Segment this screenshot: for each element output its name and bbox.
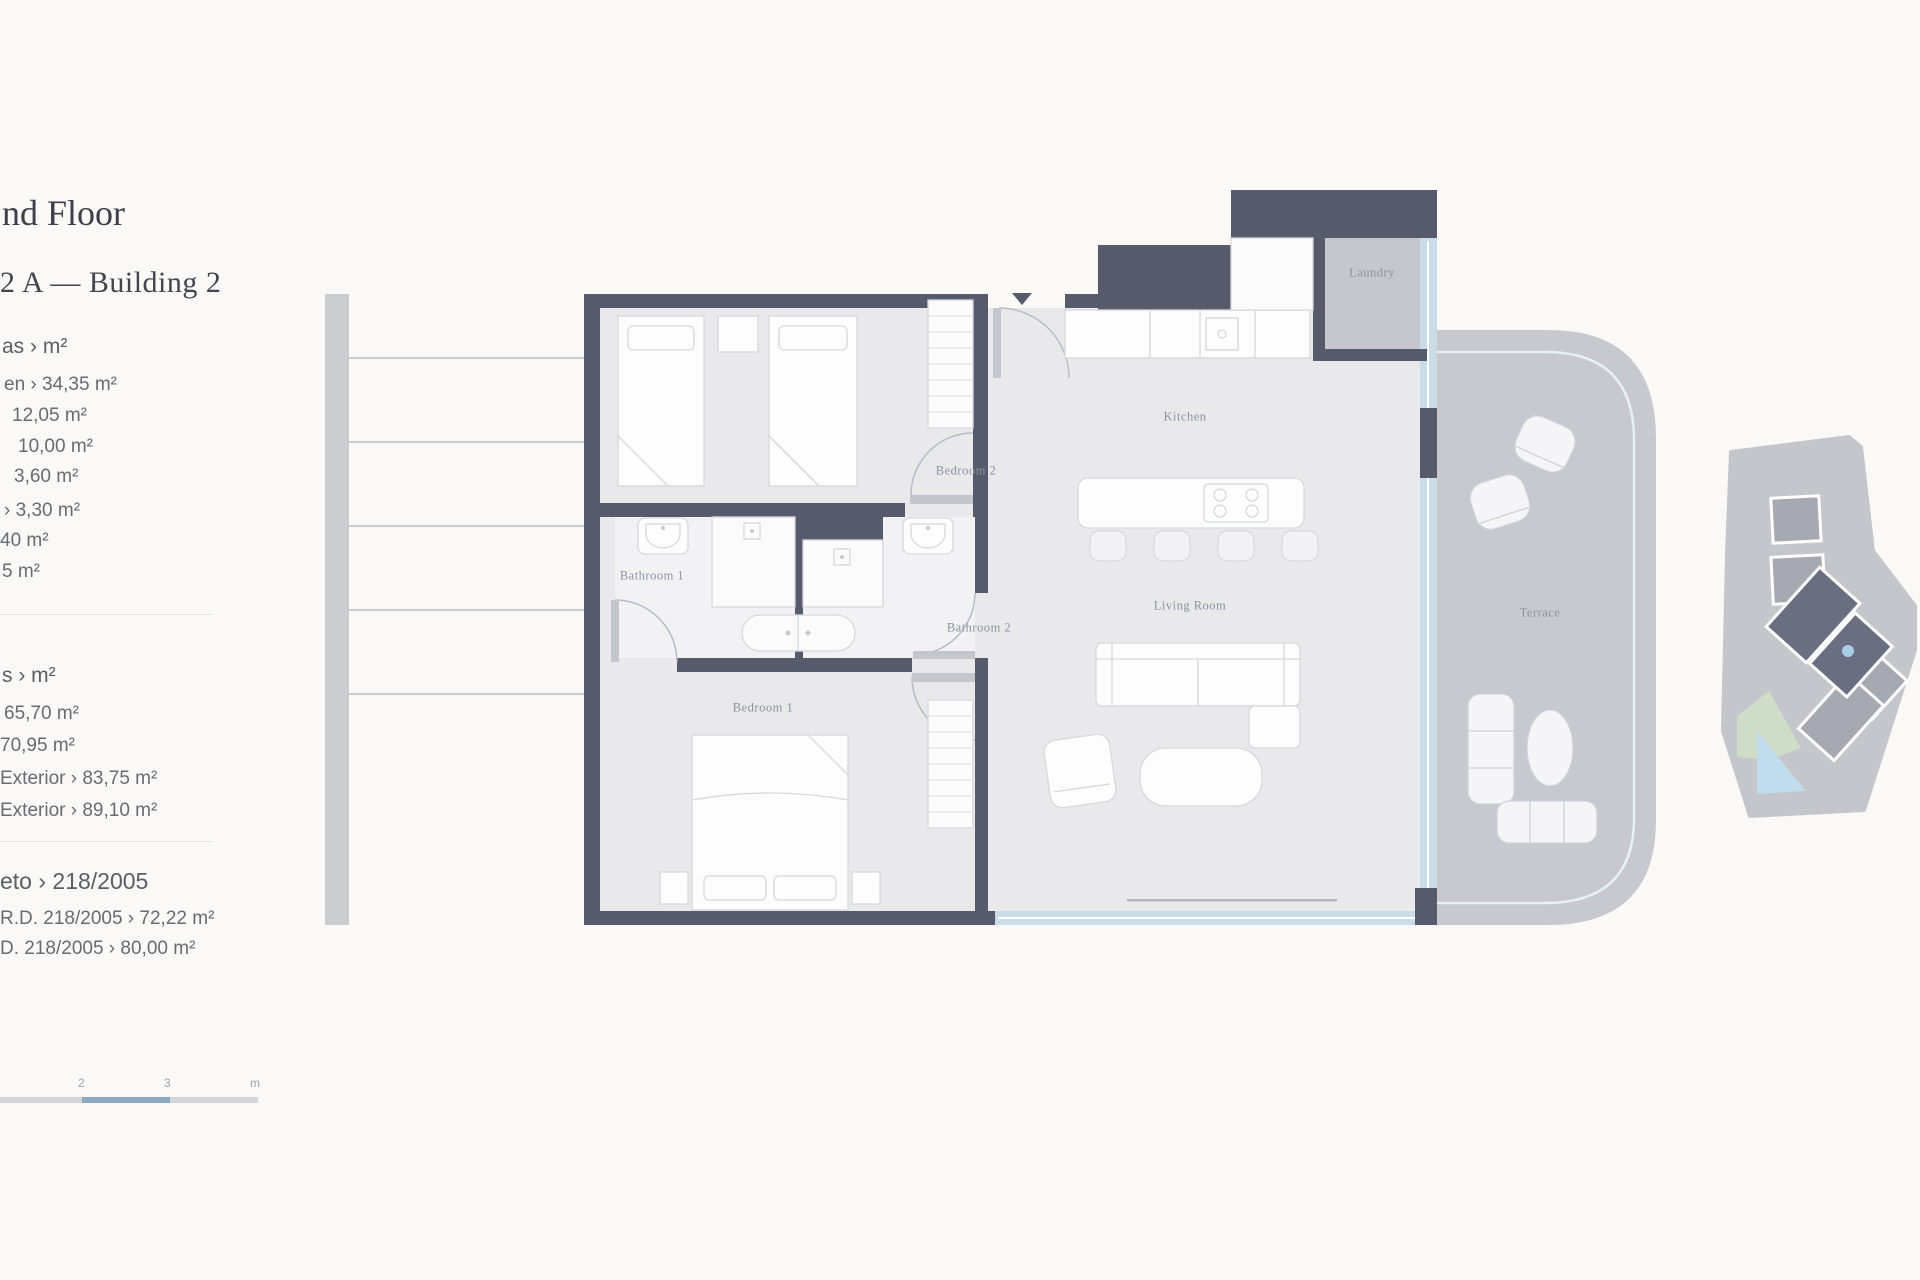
- room-label-bathroom1: Bathroom 1: [620, 569, 684, 584]
- area-item: R.D. 218/2005 › 72,22 m²: [0, 908, 214, 930]
- divider: [0, 614, 212, 615]
- site-locator-map: [1723, 437, 1915, 816]
- decree-heading: eto › 218/2005: [0, 868, 148, 895]
- room-label-kitchen: Kitchen: [1163, 410, 1206, 425]
- page-subtitle: 2 A — Building 2: [0, 266, 221, 300]
- floor-plan-page: Kitchen Living Room Bedroom 1 Bedroom 2 …: [0, 0, 1920, 1280]
- scale-label-2: 2: [78, 1076, 85, 1090]
- area-item: Exterior › 89,10 m²: [0, 800, 157, 822]
- scale-label-3: 3: [164, 1076, 171, 1090]
- page-title: nd Floor: [2, 192, 125, 234]
- bedroom1-wardrobe: [928, 700, 973, 828]
- area-item: 40 m²: [0, 530, 49, 552]
- area-item: 3,60 m²: [14, 466, 78, 488]
- floor-plan-svg: [0, 0, 1920, 1280]
- unit-highlight-dot: [1842, 645, 1854, 657]
- area-item: Exterior › 83,75 m²: [0, 768, 157, 790]
- laundry-floor: [1325, 238, 1420, 349]
- built-areas-heading: s › m²: [2, 664, 56, 688]
- living-armchair: [1043, 733, 1118, 810]
- divider: [0, 841, 212, 842]
- area-item: 65,70 m²: [4, 703, 79, 725]
- area-item: en › 34,35 m²: [4, 374, 117, 396]
- room-label-terrace: Terrace: [1520, 606, 1561, 621]
- entrance-marker-icon: [1012, 293, 1032, 305]
- room-label-bedroom2: Bedroom 2: [936, 464, 996, 479]
- useful-areas-heading: as › m²: [2, 335, 67, 359]
- area-item: 70,95 m²: [0, 735, 75, 757]
- area-item: D. 218/2005 › 80,00 m²: [0, 938, 195, 960]
- room-label-laundry: Laundry: [1349, 266, 1395, 281]
- bedroom1-bed: [660, 735, 880, 910]
- area-item: › 3,30 m²: [4, 500, 80, 522]
- scale-label-m: m: [250, 1076, 260, 1090]
- room-label-bedroom1: Bedroom 1: [733, 701, 793, 716]
- area-item: 12,05 m²: [12, 405, 87, 427]
- bedroom2-wardrobe: [928, 300, 973, 428]
- area-item: 5 m²: [2, 561, 40, 583]
- bathtub: [742, 615, 855, 651]
- scale-bar-segment: [82, 1097, 170, 1103]
- coffee-table: [1140, 748, 1262, 806]
- sliding-door-line: [1127, 899, 1337, 902]
- common-area-band: [325, 294, 584, 925]
- room-label-bathroom2: Bathroom 2: [947, 621, 1011, 636]
- area-item: 10,00 m²: [18, 436, 93, 458]
- room-label-living: Living Room: [1154, 599, 1227, 614]
